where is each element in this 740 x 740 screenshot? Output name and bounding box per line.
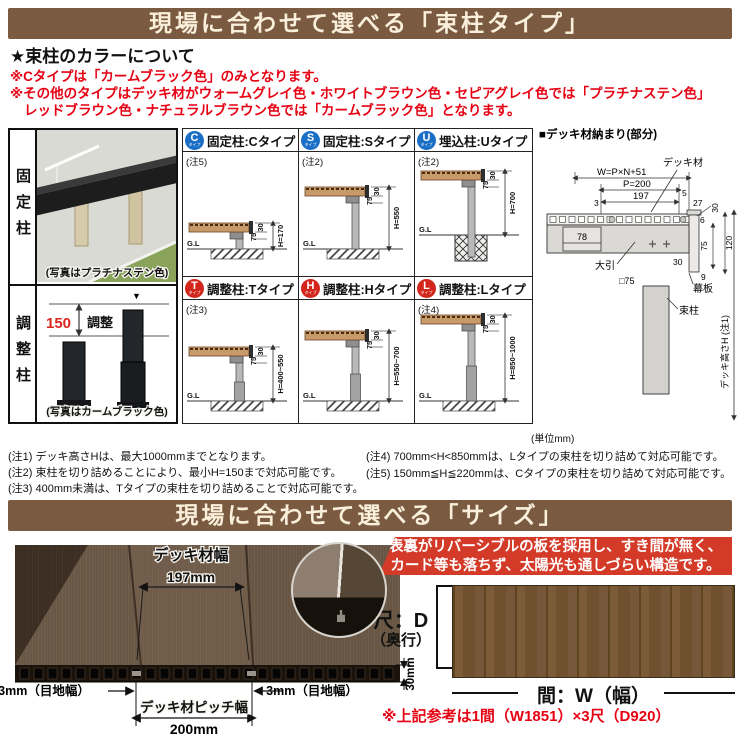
adjustable-post-illustration: ▼ ▲ 150 調整 (写真はカームブラック色)	[37, 286, 176, 418]
svg-text:H=850~1000: H=850~1000	[508, 336, 517, 379]
type-header-c: Cタイプ 固定柱:Cタイプ	[183, 129, 298, 152]
type-diagram-s: G.L3075H=550	[299, 161, 416, 275]
svg-text:G.L: G.L	[187, 391, 200, 400]
type-title-h: 調整柱:Hタイプ	[323, 279, 411, 298]
dim-5: 5	[682, 188, 687, 198]
type-header-l: Lタイプ 調整柱:Lタイプ	[415, 277, 532, 300]
deck-plan-view	[452, 585, 735, 678]
type-diagram-svg: G.L3075H=400~550	[183, 309, 300, 423]
svg-text:30: 30	[488, 315, 497, 323]
svg-text:30: 30	[256, 223, 265, 231]
width-label: 間：W（幅）	[452, 681, 735, 708]
post-label: 束柱	[679, 304, 699, 317]
deck-height-label: デッキ高さH (注1)	[719, 315, 730, 389]
deck-detail-title: ■デッキ材納まり(部分)	[539, 127, 657, 141]
type-badge-c: Cタイプ	[185, 131, 204, 150]
svg-text:30: 30	[372, 187, 381, 195]
joint-left-label: 3mm（目地幅）	[0, 683, 90, 698]
adjustable-post-caption: (写真はカームブラック色)	[46, 405, 168, 418]
dim-27: 27	[693, 198, 703, 208]
badge-letter: S	[307, 133, 314, 143]
svg-text:30: 30	[256, 347, 265, 355]
dim-75: 75	[699, 241, 709, 251]
banner-sizes: 現場に合わせて選べる「サイズ」	[8, 500, 732, 531]
pitch-value: 200mm	[170, 721, 218, 737]
depth-bracket-bottom	[436, 667, 452, 669]
type-diagram-svg: G.L3075H=700	[415, 161, 532, 275]
post-type-grid: Cタイプ 固定柱:Cタイプ (注5) G.L3075H=170 Sタイプ 固定柱…	[182, 128, 533, 424]
dim-9: 9	[701, 272, 706, 282]
type-diagram-svg: G.L3075H=170	[183, 161, 300, 275]
dim-78: 78	[577, 232, 587, 242]
type-diagram-l: G.L3075H=850~1000	[415, 309, 532, 423]
type-diagram-svg: G.L3075H=850~1000	[415, 309, 532, 423]
width-line-left	[452, 692, 518, 694]
svg-text:30: 30	[488, 171, 497, 179]
svg-text:75: 75	[365, 341, 374, 349]
depth-bracket	[436, 585, 438, 669]
type-header-u: Uタイプ 埋込柱:Uタイプ	[415, 129, 532, 152]
adjustable-post-cell: 調整柱 ▼ ▲ 150 調整 (写真はカームブラック色)	[10, 286, 176, 422]
unit-label: (単位mm)	[531, 430, 574, 445]
svg-text:75: 75	[249, 233, 258, 241]
svg-text:H=550: H=550	[392, 207, 401, 229]
depth-bracket-top	[436, 585, 452, 587]
deck-detail-diagram: ■デッキ材納まり(部分) デッキ材 W=P×N+51 P=200 5 3 197…	[537, 126, 737, 426]
svg-text:G.L: G.L	[187, 239, 200, 248]
note-2: (注2) 束柱を切り詰めることにより、最小H=150まで対応可能です。	[8, 464, 341, 480]
type-cell-h: Hタイプ 調整柱:Hタイプ G.L3075H=550~700	[299, 277, 415, 424]
fixed-post-caption: (写真はプラチナステン色)	[46, 266, 169, 279]
type-cell-t: Tタイプ 調整柱:Tタイプ (注3) G.L3075H=400~550	[183, 277, 299, 424]
badge-sub: タイプ	[304, 143, 316, 147]
deck-material-label: デッキ材	[663, 156, 703, 169]
dim-30-bottom: 30	[673, 257, 683, 267]
color-note-3: レッドブラウン色・ナチュラルブラウン色では「カームブラック色」となります。	[24, 99, 521, 119]
depth-label-sub: （奥行）	[366, 632, 436, 649]
type-badge-t: Tタイプ	[185, 279, 204, 298]
dim-120: 120	[724, 236, 734, 250]
svg-text:H=550~700: H=550~700	[392, 346, 401, 385]
svg-text:75: 75	[481, 181, 490, 189]
type-cell-u: Uタイプ 埋込柱:Uタイプ (注2) G.L3075H=700	[415, 129, 532, 277]
badge-letter: L	[423, 281, 430, 291]
svg-text:75: 75	[365, 197, 374, 205]
badge-letter: T	[191, 281, 198, 291]
pitch-label: デッキ材ピッチ幅	[140, 699, 248, 715]
type-title-t: 調整柱:Tタイプ	[207, 279, 294, 298]
post-photo-panel: 固定柱 (写真はプラチナステン色)	[8, 128, 178, 424]
svg-text:H=700: H=700	[508, 192, 517, 214]
type-diagram-t: G.L3075H=400~550	[183, 309, 300, 423]
dim-6: 6	[700, 215, 705, 225]
joint-clip-icon	[337, 610, 345, 622]
adjust-word: 調整	[87, 315, 114, 330]
type-diagram-svg: G.L3075H=550~700	[299, 309, 416, 423]
note-4: (注4) 700mm<H<850mmは、Lタイプの束柱を切り詰めて対応可能です。	[366, 448, 724, 464]
adjust-dimension: 150	[46, 315, 71, 332]
joint-closeup-photo	[291, 542, 387, 638]
note-1: (注1) デッキ高さHは、最大1000mmまでとなります。	[8, 448, 272, 464]
svg-text:G.L: G.L	[303, 391, 316, 400]
type-header-h: Hタイプ 調整柱:Hタイプ	[299, 277, 414, 300]
pitch-dim: P=200	[623, 179, 651, 190]
svg-text:G.L: G.L	[419, 225, 432, 234]
type-title-l: 調整柱:Lタイプ	[439, 279, 526, 298]
type-title-s: 固定柱:Sタイプ	[323, 131, 411, 150]
adjustable-post-photo: ▼ ▲ 150 調整 (写真はカームブラック色)	[37, 286, 176, 422]
type-badge-h: Hタイプ	[301, 279, 320, 298]
color-heading: ★束柱のカラーについて	[10, 42, 195, 67]
badge-sub: タイプ	[188, 143, 200, 147]
svg-text:H=170: H=170	[276, 225, 285, 247]
dim-3: 3	[594, 198, 599, 208]
svg-text:30: 30	[372, 331, 381, 339]
deck-width-label: デッキ材幅	[153, 546, 228, 564]
type-badge-l: Lタイプ	[417, 279, 436, 298]
svg-text:75: 75	[481, 325, 490, 333]
badge-sub: タイプ	[420, 291, 432, 295]
banner-post-types: 現場に合わせて選べる「束柱タイプ」	[8, 8, 732, 39]
type-cell-s: Sタイプ 固定柱:Sタイプ (注2) G.L3075H=550	[299, 129, 415, 277]
type-badge-s: Sタイプ	[301, 131, 320, 150]
svg-text:75: 75	[249, 357, 258, 365]
dim-197: 197	[633, 191, 649, 202]
fixed-post-cell: 固定柱 (写真はプラチナステン色)	[10, 130, 176, 286]
type-badge-u: Uタイプ	[417, 131, 436, 150]
badge-letter: H	[307, 281, 315, 291]
down-arrow-icon: ▼	[132, 291, 141, 301]
feature-line-2: カード等も落ちず、太陽光も通しづらい構造です。	[379, 557, 732, 576]
badge-letter: C	[191, 133, 199, 143]
joist-label: 大引	[595, 259, 615, 272]
type-title-u: 埋込柱:Uタイプ	[439, 131, 527, 150]
thickness-label: 30mm	[405, 657, 417, 690]
feature-banner: 表裏がリバーシブルの板を採用し、すき間が無く、 カード等も落ちず、太陽光も通しづ…	[379, 537, 732, 575]
catalog-page: 現場に合わせて選べる「束柱タイプ」 ★束柱のカラーについて ※Cタイプは「カーム…	[0, 0, 740, 740]
svg-text:G.L: G.L	[303, 239, 316, 248]
feature-line-1: 表裏がリバーシブルの板を採用し、すき間が無く、	[379, 538, 732, 557]
type-cell-l: Lタイプ 調整柱:Lタイプ (注4) G.L3075H=850~1000	[415, 277, 532, 424]
type-diagram-u: G.L3075H=700	[415, 161, 532, 275]
deck-width-value: 197mm	[167, 569, 215, 585]
type-title-c: 固定柱:Cタイプ	[207, 131, 295, 150]
type-cell-c: Cタイプ 固定柱:Cタイプ (注5) G.L3075H=170	[183, 129, 299, 277]
badge-sub: タイプ	[188, 291, 200, 295]
type-diagram-svg: G.L3075H=550	[299, 161, 416, 275]
adjustable-post-label: 調整柱	[10, 286, 37, 422]
type-diagram-c: G.L3075H=170	[183, 161, 300, 275]
type-diagram-h: G.L3075H=550~700	[299, 309, 416, 423]
size-reference-note: ※上記参考は1間（W1851）×3尺（D920）	[382, 705, 670, 726]
width-line-right	[664, 692, 735, 694]
fixed-post-illustration: (写真はプラチナステン色)	[37, 130, 176, 282]
fixed-post-photo: (写真はプラチナステン色)	[37, 130, 176, 284]
svg-text:H=400~550: H=400~550	[276, 354, 285, 393]
fixed-post-label: 固定柱	[10, 130, 37, 284]
type-header-s: Sタイプ 固定柱:Sタイプ	[299, 129, 414, 152]
dim-30-top: 30	[710, 203, 720, 213]
post-size-label: □75	[619, 276, 634, 286]
type-header-t: Tタイプ 調整柱:Tタイプ	[183, 277, 298, 300]
w-formula: W=P×N+51	[597, 167, 646, 178]
badge-letter: U	[423, 133, 431, 143]
svg-text:G.L: G.L	[419, 391, 432, 400]
badge-sub: タイプ	[420, 143, 432, 147]
badge-sub: タイプ	[304, 291, 316, 295]
fascia-label: 幕板	[693, 282, 713, 295]
note-3: (注3) 400mm未満は、Tタイプの束柱を切り詰めることで対応可能です。	[8, 480, 363, 496]
note-5: (注5) 150mm≦H≦220mmは、Cタイプの束柱を切り詰めて対応可能です。	[366, 465, 731, 481]
